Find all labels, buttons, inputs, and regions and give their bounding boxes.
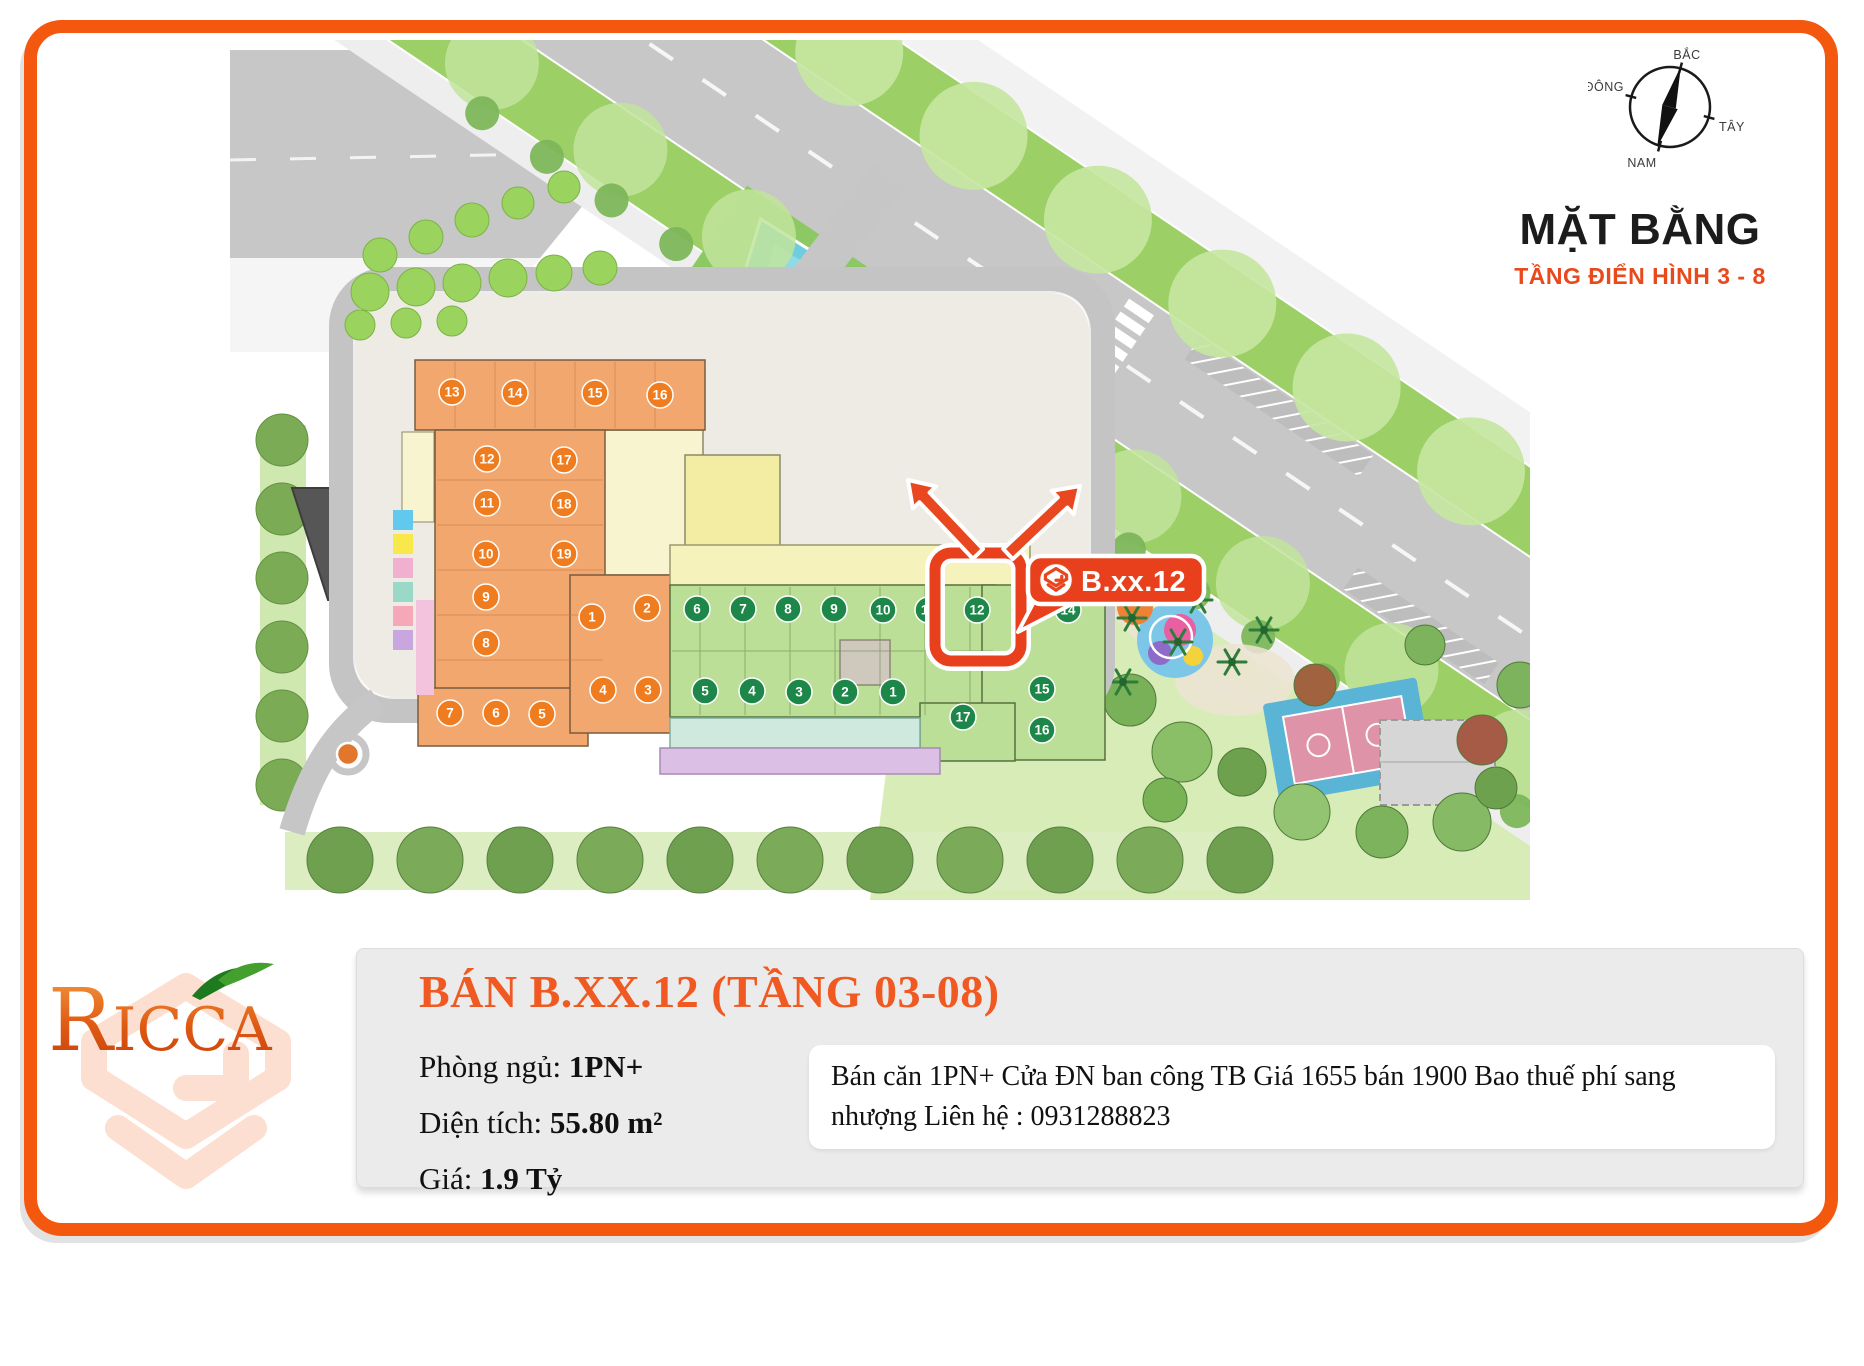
- svg-text:13: 13: [444, 385, 460, 400]
- svg-text:12: 12: [969, 603, 984, 618]
- svg-text:9: 9: [482, 590, 490, 605]
- price-row: Giá: 1.9 Tỷ: [419, 1157, 662, 1213]
- bedrooms-value: 1PN+: [569, 1049, 644, 1084]
- compass: BẮC ĐÔNG TÂY NAM: [1588, 45, 1758, 175]
- compass-south-label: NAM: [1627, 156, 1656, 170]
- price-label: Giá:: [419, 1161, 472, 1196]
- svg-text:8: 8: [482, 636, 490, 651]
- svg-text:10: 10: [875, 603, 890, 618]
- svg-text:3: 3: [795, 685, 803, 700]
- listing-details: Phòng ngủ: 1PN+ Diện tích: 55.80 m² Giá:…: [419, 1045, 662, 1213]
- bottom-tree-row: [285, 827, 1273, 893]
- leaf-icon: [188, 956, 284, 1004]
- plan-header: MẶT BẰNG TẦNG ĐIỂN HÌNH 3 - 8: [1430, 205, 1850, 290]
- svg-text:16: 16: [652, 388, 668, 403]
- listing-card: BÁN B.XX.12 (TẦNG 03-08) Phòng ngủ: 1PN+…: [356, 948, 1804, 1188]
- page-subtitle: TẦNG ĐIỂN HÌNH 3 - 8: [1430, 263, 1850, 290]
- listing-description: Bán căn 1PN+ Cửa ĐN ban công TB Giá 1655…: [809, 1045, 1775, 1149]
- svg-text:1: 1: [889, 685, 897, 700]
- compass-north-label: BẮC: [1673, 47, 1700, 62]
- page: 13141516121711181019987651234 6789101112…: [0, 0, 1864, 1366]
- svg-text:11: 11: [480, 496, 495, 511]
- site-plan-svg: 13141516121711181019987651234 6789101112…: [230, 40, 1530, 900]
- svg-text:6: 6: [492, 706, 500, 721]
- brand-logo: Ricca: [48, 950, 338, 1230]
- area-label: Diện tích:: [419, 1105, 542, 1140]
- svg-text:7: 7: [739, 602, 747, 617]
- svg-text:18: 18: [556, 497, 572, 512]
- callout-label: B.xx.12: [1081, 566, 1186, 598]
- site-plan: 13141516121711181019987651234 6789101112…: [230, 40, 1530, 900]
- svg-text:16: 16: [1034, 723, 1050, 738]
- area-row: Diện tích: 55.80 m²: [419, 1101, 662, 1157]
- svg-text:3: 3: [644, 683, 652, 698]
- svg-text:17: 17: [955, 710, 970, 725]
- area-value: 55.80 m²: [550, 1105, 663, 1140]
- svg-text:6: 6: [693, 602, 701, 617]
- core: [840, 640, 890, 685]
- svg-text:10: 10: [478, 547, 493, 562]
- roundabout: [337, 743, 359, 765]
- page-title: MẶT BẰNG: [1430, 205, 1850, 255]
- svg-text:4: 4: [599, 683, 607, 698]
- svg-text:9: 9: [830, 602, 838, 617]
- svg-text:14: 14: [507, 386, 523, 401]
- svg-text:15: 15: [1034, 682, 1050, 697]
- compass-east-label: ĐÔNG: [1588, 79, 1624, 94]
- svg-text:2: 2: [841, 685, 849, 700]
- svg-text:8: 8: [784, 602, 792, 617]
- listing-title: BÁN B.XX.12 (TẦNG 03-08): [419, 965, 1000, 1018]
- svg-text:7: 7: [446, 706, 454, 721]
- svg-text:19: 19: [556, 547, 571, 562]
- svg-text:5: 5: [538, 707, 546, 722]
- svg-text:15: 15: [587, 386, 603, 401]
- compass-west-label: TÂY: [1719, 119, 1745, 134]
- svg-text:1: 1: [588, 610, 596, 625]
- svg-text:17: 17: [556, 453, 571, 468]
- bedrooms-label: Phòng ngủ:: [419, 1049, 561, 1084]
- svg-text:5: 5: [701, 684, 709, 699]
- svg-text:2: 2: [643, 601, 651, 616]
- svg-text:4: 4: [748, 684, 756, 699]
- bedrooms-row: Phòng ngủ: 1PN+: [419, 1045, 662, 1101]
- svg-text:12: 12: [479, 452, 494, 467]
- price-value: 1.9 Tỷ: [480, 1161, 562, 1196]
